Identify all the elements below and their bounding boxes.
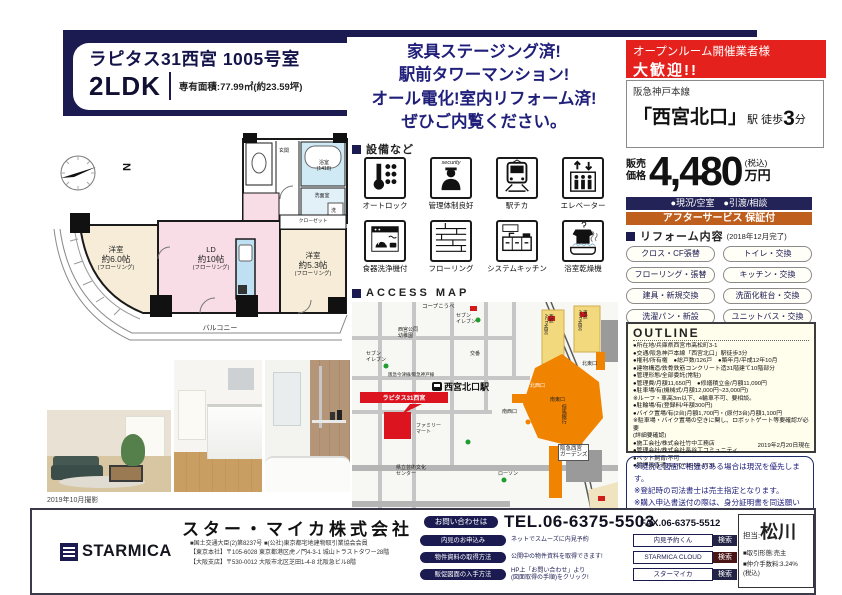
compass-n-label: N xyxy=(120,163,132,171)
map-label-artcenter: 県立芸術文化 センター xyxy=(396,466,426,478)
outline-box: OUTLINE ●所在地/兵庫県西宮市高松町3-1 ●交通/阪急神戸本線「西宮北… xyxy=(626,322,816,453)
room-floor: (フローリング) xyxy=(175,265,247,272)
photo-bathroom xyxy=(265,360,350,492)
search-term-box: STARMICA CLOUD xyxy=(633,551,713,564)
price-value: 4,480 xyxy=(649,151,742,192)
reform-item: キッチン・交換 xyxy=(723,267,812,283)
price-tax-note: (税込) xyxy=(745,158,771,168)
equipment-heading-text: 設備など xyxy=(366,141,414,157)
row-desc: ネットでスムーズに内見予約 xyxy=(506,537,633,544)
elevator-icon xyxy=(562,157,604,199)
reform-item: トイレ・交換 xyxy=(723,246,812,262)
balcony-label: バルコニー xyxy=(180,323,260,333)
outline-line: ●管理会社/株式会社長谷工コミュニティ xyxy=(633,448,809,456)
equipment-grid: オートロック security 管理体制良好 駅チカ エレベーター 食器 xyxy=(352,157,616,283)
access-map: コープこうべ セブン イレブン 西宮公同 幼稚園 交番 阪急今津線/阪急神戸線 … xyxy=(352,302,618,522)
agent-label: 担当: xyxy=(743,531,760,540)
bath-shelf xyxy=(312,420,346,423)
reform-heading-text: リフォーム内容 xyxy=(640,228,724,244)
row-desc: HP上「お問い合わせ」より (図面取得の手順)をクリック! xyxy=(506,568,633,582)
coffee-table xyxy=(109,465,143,482)
contact-rows: 内見のお申込み ネットでスムーズに内見予約 内見予約くん 検索 物件資料の取得方… xyxy=(420,534,737,586)
equipment-heading: 設備など xyxy=(352,141,414,157)
map-label-acta-west: 西館 ACTA西宮 xyxy=(544,314,554,364)
train-icon xyxy=(432,382,442,391)
search-button: 検索 xyxy=(713,535,737,546)
photo-caption: 2019年10月撮影 xyxy=(47,495,98,505)
room-size: 約5.3帖 xyxy=(278,260,348,271)
station-name: 「西宮北口」 xyxy=(633,102,747,129)
map-label-tajima-bank: 但馬銀行 xyxy=(560,404,566,434)
map-exit-ne: 北東口 xyxy=(582,362,597,368)
search-term-box: 内見予約くん xyxy=(633,534,713,547)
equipment-label: 浴室乾燥機 xyxy=(550,263,616,274)
outline-line: ●権利/所有権 ●総戸数/126戸 ●築年月/平成12年10月 xyxy=(633,358,809,366)
search-button: 検索 xyxy=(713,552,737,563)
footer-box: スター・マイカ株式会社 STARMICA ■国土交通大臣(2)第8237号 ■(… xyxy=(30,508,816,595)
system-kitchen-icon xyxy=(496,220,538,262)
starmica-logo-icon xyxy=(60,543,78,561)
flooring-icon xyxy=(430,220,472,262)
outline-line: ●所在地/兵庫県西宮市高松町3-1 xyxy=(633,343,809,351)
status-bar: ●現況/空室 ●引渡/相談 xyxy=(626,197,812,210)
map-label-acta-east: 東館 ACTA西宮 xyxy=(578,310,588,354)
room-floor: (フローリング) xyxy=(80,265,152,272)
agent-fee: ■仲介手数料:3.24% (税込) xyxy=(743,559,809,577)
closet-label: クローゼット xyxy=(282,217,344,224)
reform-item: フローリング・張替 xyxy=(626,267,715,283)
equipment-item: security 管理体制良好 xyxy=(418,157,484,220)
outline-line: ※ルーフ・車高3m以下、4輪車不可、要相談。 xyxy=(633,396,809,404)
area-label: 専有面積:77.99㎡(約23.59坪) xyxy=(179,79,303,93)
equipment-label: エレベーター xyxy=(550,200,616,211)
reform-item: 建具・新規交換 xyxy=(626,288,715,304)
brand-text: STARMICA xyxy=(82,542,172,561)
title-panel: ラピタス31西宮 1005号室 2LDK 専有面積:77.99㎡(約23.59坪… xyxy=(73,43,347,110)
bottle xyxy=(337,410,342,420)
search-term-box: スターマイカ xyxy=(633,568,713,581)
open-room-banner: オープンルーム開催業者様 大歓迎!! xyxy=(626,40,826,78)
bath-dryer-icon xyxy=(562,220,604,262)
layout-label: 2LDK xyxy=(89,73,161,99)
kitchen-window xyxy=(178,390,206,440)
equipment-item: 浴室乾燥機 xyxy=(550,220,616,283)
equipment-item: 食器洗浄機付 xyxy=(352,220,418,283)
bath-mirror xyxy=(273,372,301,426)
contact-row: 物件資料の取得方法 公開中の物件資料を取得できます! STARMICA CLOU… xyxy=(420,551,737,564)
row-label: 内見のお申込み xyxy=(420,535,506,546)
equipment-label: システムキッチン xyxy=(484,263,550,274)
agent-deal-type: ■取引形態:売主 xyxy=(743,548,809,557)
range-hood xyxy=(228,368,254,390)
agent-box: 担当:松川 ■取引形態:売主 ■仲介手数料:3.24% (税込) xyxy=(738,514,814,588)
outline-line: ●駐輪場/有(登録料/年額300円) xyxy=(633,403,809,411)
bottle xyxy=(330,412,335,420)
square-bullet-icon xyxy=(352,145,361,154)
plant xyxy=(121,434,145,466)
after-service-bar: アフターサービス 保証付 xyxy=(626,212,812,225)
photo-kitchen xyxy=(174,360,262,492)
price-label: 販売 価格 xyxy=(626,159,646,184)
title-divider xyxy=(169,72,171,100)
ld-label: LD 約10帖 (フローリング) xyxy=(175,245,247,272)
train-icon xyxy=(496,157,538,199)
equipment-item: システムキッチン xyxy=(484,220,550,283)
brand-logo: STARMICA xyxy=(60,542,172,561)
map-label-seveneleven2: セブン イレブン xyxy=(366,352,386,364)
equipment-item: オートロック xyxy=(352,157,418,220)
company-name: スター・マイカ株式会社 xyxy=(182,515,413,540)
room-size: 約10帖 xyxy=(175,254,247,265)
room-name: 洋室 xyxy=(278,251,348,260)
bedroom2-label: 洋室 約5.3帖 (フローリング) xyxy=(278,251,348,278)
equipment-label: フローリング xyxy=(418,263,484,274)
outline-line: ●管理費/月額11,650円 ●修繕積立金/月額11,090円 xyxy=(633,381,809,389)
map-label-seveneleven: セブン イレブン xyxy=(456,314,476,326)
dishwasher-icon xyxy=(364,220,406,262)
equipment-label: 管理体制良好 xyxy=(418,200,484,211)
security-guard-icon: security xyxy=(430,157,472,199)
reform-list: クロス・CF張替 トイレ・交換 フローリング・張替 キッチン・交換 建具・新規交… xyxy=(626,246,812,325)
tel-number: TEL.06-6375-5503 xyxy=(504,512,655,532)
reform-item: 洗面化粧台・交換 xyxy=(723,288,812,304)
row-desc: 公開中の物件資料を取得できます! xyxy=(506,554,633,561)
contact-row: 販促図面の入手方法 HP上「お問い合わせ」より (図面取得の手順)をクリック! … xyxy=(420,568,737,582)
map-exit-sw: 南西口 xyxy=(502,410,517,416)
price-unit: 万円 xyxy=(745,168,771,184)
outline-asof: 2019年2月20日現在 xyxy=(758,440,810,449)
open-room-line2: 大歓迎!! xyxy=(633,59,819,80)
station-minutes: 3 xyxy=(783,110,795,129)
row-label: 販促図面の入手方法 xyxy=(420,569,506,580)
license-text: ■国土交通大臣(2)第8237号 ■(公社)東京都宅地建物取引業協会会員 【東京… xyxy=(190,540,389,568)
equipment-label: オートロック xyxy=(352,200,418,211)
outline-line: ※駐車場・バイク置場の空きに関し、ロボットゲート等要確認が必要 xyxy=(633,418,809,433)
outline-line: ●建物構造/鉄骨鉄筋コンクリート造31階建て10階部分 xyxy=(633,366,809,374)
contact-row: 内見のお申込み ネットでスムーズに内見予約 内見予約くん 検索 xyxy=(420,534,737,547)
map-label-koban: 交番 xyxy=(470,352,480,358)
map-property-label: ラピタス31西宮 xyxy=(360,392,448,403)
agent-name: 松川 xyxy=(760,522,796,543)
outline-title: OUTLINE xyxy=(633,326,809,341)
map-label-kindergarten: 西宮公同 幼稚園 xyxy=(398,328,418,340)
map-label-gardens: 阪急西宮 ガーデンズ xyxy=(558,444,589,461)
map-heading: ACCESS MAP xyxy=(352,287,469,299)
outline-line: ●バイク置場/有(2台)月額1,700円・(原付3台)月額1,100円 xyxy=(633,411,809,419)
bath-label: 浴室 (1418) xyxy=(304,159,344,172)
station-access-box: 阪急神戸本線 「西宮北口」 駅 徒歩 3 分 xyxy=(626,80,824,148)
entrance-label: 玄関 xyxy=(279,147,289,154)
open-room-line1: オープンルーム開催業者様 xyxy=(633,43,819,59)
station-name-text: 西宮北口駅 xyxy=(444,380,489,393)
floor-plan: 洋室 約6.0帖 (フローリング) LD 約10帖 (フローリング) 洋室 約5… xyxy=(40,133,350,365)
reform-date: (2018年12月完了) xyxy=(727,231,787,242)
outline-line: ●管理形態/全部委託(常駐) xyxy=(633,373,809,381)
search-button: 検索 xyxy=(713,569,737,580)
outline-line: ●交通/阪急神戸本線「西宮北口」駅徒歩3分 xyxy=(633,351,809,359)
contact-label: お問い合わせは xyxy=(424,516,498,528)
outline-line: ●駐車場/有(機械式/月額12,000円~23,000円) xyxy=(633,388,809,396)
map-label-lawson: ローソン xyxy=(498,472,518,478)
row-label: 物件資料の取得方法 xyxy=(420,552,506,563)
autolock-icon xyxy=(364,157,406,199)
photo-living xyxy=(47,410,171,492)
railway-line: 阪急神戸本線 xyxy=(633,84,817,98)
fax-number: FAX.06-6375-5512 xyxy=(640,518,720,529)
map-exit-se: 南東口 xyxy=(550,398,565,404)
flyer-page: ラピタス31西宮 1005号室 2LDK 専有面積:77.99㎡(約23.59坪… xyxy=(0,0,842,595)
map-label-coop: コープこうべ xyxy=(422,304,455,310)
equipment-item: フローリング xyxy=(418,220,484,283)
room-name: LD xyxy=(175,245,247,254)
reform-item: クロス・CF張替 xyxy=(626,246,715,262)
map-exit-nw: 北西口 xyxy=(530,384,545,390)
map-label-familymart: ファミリー マート xyxy=(416,424,441,436)
square-bullet-icon xyxy=(352,289,361,298)
station-walk: 駅 徒歩 xyxy=(747,111,783,129)
bathtub xyxy=(265,456,350,492)
room-floor: (フローリング) xyxy=(278,271,348,278)
shower-bar xyxy=(319,366,322,428)
equipment-label: 食器洗浄機付 xyxy=(352,263,418,274)
security-badge: security xyxy=(432,160,470,166)
equipment-item: エレベーター xyxy=(550,157,616,220)
reform-heading: リフォーム内容 (2018年12月完了) xyxy=(626,228,812,244)
property-title: ラピタス31西宮 1005号室 xyxy=(89,46,339,71)
kitchen-cabinets xyxy=(207,404,262,459)
catch-copy: 家具ステージング済! 駅前タワーマンション! オール電化!室内リフォーム済! ぜ… xyxy=(348,41,620,135)
station-minutes-unit: 分 xyxy=(795,111,806,129)
washroom-label: 洗面室 xyxy=(304,192,340,199)
equipment-item: 駅チカ xyxy=(484,157,550,220)
room-name: 洋室 xyxy=(80,245,152,254)
washer-label: 洗 xyxy=(331,207,336,214)
map-heading-text: ACCESS MAP xyxy=(366,287,469,299)
square-bullet-icon xyxy=(626,232,635,241)
price-block: 販売 価格 4,480 (税込) 万円 xyxy=(626,148,812,194)
top-accent-strip xyxy=(63,30,757,37)
title-block: ラピタス31西宮 1005号室 2LDK 専有面積:77.99㎡(約23.59坪… xyxy=(63,37,347,116)
map-label-railways: 阪急今津線/阪急神戸線 xyxy=(388,372,434,377)
room-size: 約6.0帖 xyxy=(80,254,152,265)
equipment-label: 駅チカ xyxy=(484,200,550,211)
bedroom1-label: 洋室 約6.0帖 (フローリング) xyxy=(80,245,152,272)
